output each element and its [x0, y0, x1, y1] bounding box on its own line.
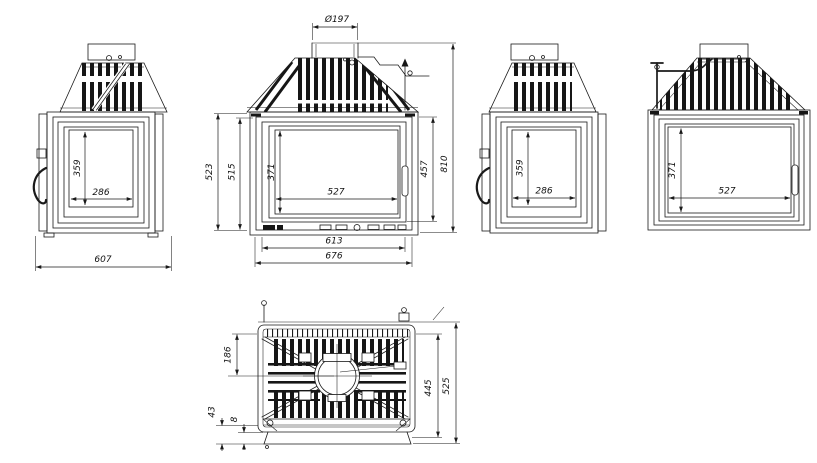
dim-label-base-width: 613 [325, 237, 342, 247]
view-side-right-dimensions: 359 286 [513, 132, 575, 205]
dim-label-overall-width-front: 676 [325, 252, 342, 262]
dim-label-overall-depth: 525 [442, 377, 452, 394]
dim-label-body-depth: 445 [424, 379, 434, 396]
view-front-main: Ø197 523 515 371 527 457 810 613 [205, 14, 457, 267]
view-front-plain-dimensions: 371 527 [668, 129, 790, 213]
view-side-left-dimensions: 359 286 607 [36, 132, 172, 271]
view-front-main-linework [245, 43, 456, 235]
dim-label-side-right-window-height: 359 [516, 159, 526, 176]
door-handle-left-view [34, 168, 46, 203]
dim-label-glass-width-main: 527 [327, 188, 344, 198]
view-front-plain-linework [648, 44, 810, 230]
view-side-right: 359 286 [477, 44, 606, 233]
dim-label-front-lip: 8 [230, 416, 240, 422]
dim-label-side-left-window-width: 286 [92, 188, 109, 198]
drawing-page: 359 286 607 [0, 0, 817, 463]
dim-label-height-outer: 523 [205, 163, 215, 180]
view-side-left-linework [34, 44, 170, 237]
dim-label-side-right-window-width: 286 [535, 187, 552, 197]
dim-label-side-left-overall-width: 607 [94, 255, 111, 265]
door-latch-front-main [402, 166, 408, 196]
dim-label-overall-height: 810 [440, 155, 450, 172]
dim-label-door-height: 457 [420, 160, 430, 177]
door-handle-right-view [477, 168, 489, 203]
view-side-left: 359 286 607 [34, 44, 172, 271]
dim-label-height-inner: 515 [228, 163, 238, 180]
view-front-plain: 371 527 [648, 44, 810, 230]
dim-label-glass-width-plain: 527 [718, 187, 735, 197]
view-top: 186 43 8 445 525 [208, 301, 461, 451]
view-top-linework [258, 301, 460, 449]
door-latch-front-plain [792, 165, 798, 195]
dim-label-flue-diameter: Ø197 [324, 14, 350, 25]
technical-drawing-canvas: 359 286 607 [0, 0, 817, 463]
dim-label-front-offset: 43 [208, 406, 218, 418]
dim-label-side-left-window-height: 359 [73, 159, 83, 176]
dim-label-glass-height-main: 371 [267, 163, 277, 180]
view-side-right-linework [477, 44, 606, 233]
dim-label-glass-height-plain: 371 [668, 161, 678, 178]
dim-label-back-to-flue-center: 186 [224, 346, 234, 363]
